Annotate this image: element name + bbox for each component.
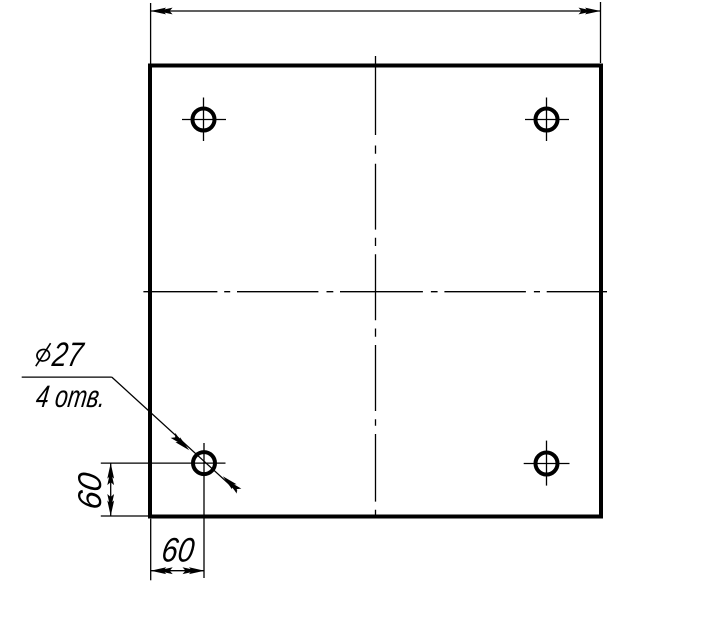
svg-text:60: 60 (72, 470, 109, 512)
svg-text:60: 60 (159, 532, 196, 570)
svg-text:4 отв.: 4 отв. (34, 379, 108, 414)
